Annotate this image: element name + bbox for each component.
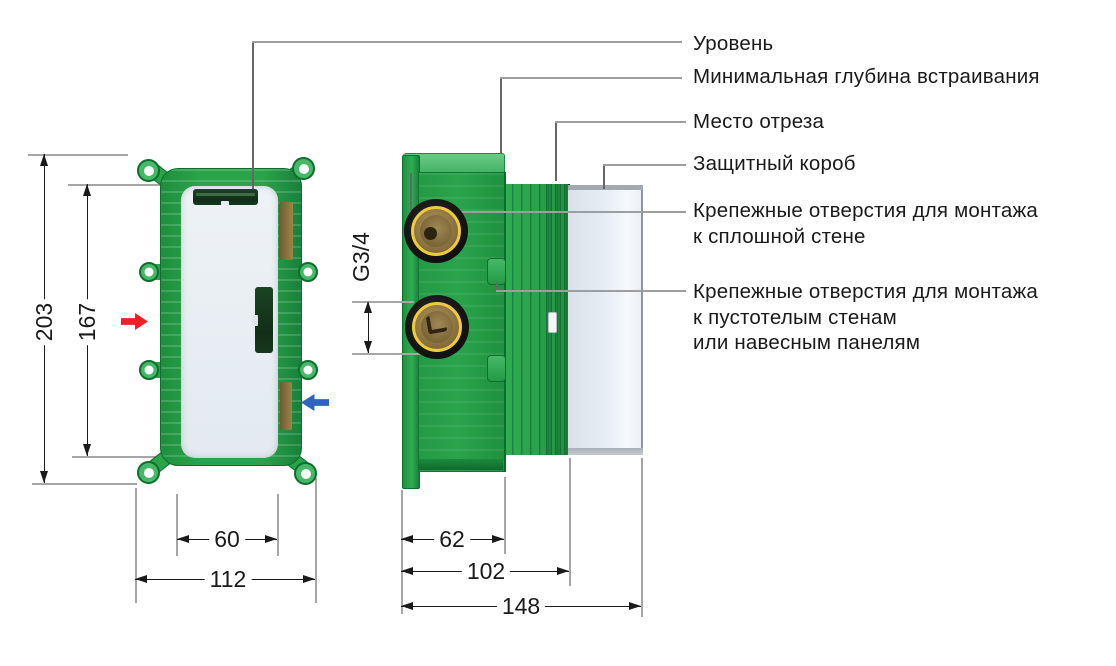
label-min-depth: Минимальная глубина встраивания xyxy=(693,64,1040,90)
label-hollow-wall-line3: или навесным панелям xyxy=(693,330,1038,356)
dim-167-arrow-bottom xyxy=(83,444,91,456)
hollow-wall-tab xyxy=(487,355,506,382)
leader-cut-place xyxy=(555,121,686,123)
ext-112-left xyxy=(135,488,137,603)
dim-102-value: 102 xyxy=(462,559,510,583)
ext-203-bottom xyxy=(32,483,137,485)
dim-62-arrow-right xyxy=(492,535,504,543)
leader-hollow-wall xyxy=(496,290,686,292)
port-top-g34 xyxy=(404,199,468,263)
dim-60-value: 60 xyxy=(209,527,245,551)
dim-203-arrow-top xyxy=(40,154,48,166)
side-slot xyxy=(255,287,273,353)
dim-112-value: 112 xyxy=(205,567,252,591)
protective-box-bottom-edge xyxy=(568,448,643,455)
label-protective-box: Защитный короб xyxy=(693,151,856,177)
dim-148-value: 148 xyxy=(497,594,545,618)
dim-g34-value: G3/4 xyxy=(349,228,373,286)
protective-box xyxy=(568,185,643,455)
mounting-lug-bottom-left xyxy=(137,461,160,484)
cut-zone-clip xyxy=(548,312,557,333)
dim-102-arrow-left xyxy=(401,567,413,575)
ext-148-left xyxy=(401,490,403,614)
dim-203-arrow-bottom xyxy=(40,471,48,483)
mounting-lug-bottom-right xyxy=(294,462,317,485)
leader-protective-box xyxy=(603,164,686,166)
ext-167-bottom xyxy=(72,456,162,458)
ext-60-right xyxy=(277,494,279,556)
leader-min-depth xyxy=(500,77,682,79)
dim-203-value: 203 xyxy=(32,299,56,345)
label-solid-wall: Крепежные отверстия для монтажа к сплошн… xyxy=(693,198,1038,249)
dim-167-arrow-top xyxy=(83,184,91,196)
dim-167-value: 167 xyxy=(75,299,99,345)
dim-g34-arrow-top xyxy=(364,301,372,313)
dim-g34-arrow-bottom xyxy=(364,341,372,353)
body-bottom-face xyxy=(419,459,503,470)
dim-148-arrow-right xyxy=(629,602,641,610)
dim-112-arrow-left xyxy=(135,575,147,583)
label-hollow-wall: Крепежные отверстия для монтажа к пустот… xyxy=(693,279,1038,356)
port-bottom-g34 xyxy=(405,295,469,359)
shower-valve-installation-diagram: Уровень Минимальная глубина встраивания … xyxy=(0,0,1116,666)
brass-edge xyxy=(279,202,293,260)
label-level: Уровень xyxy=(693,31,773,57)
dim-148-arrow-left xyxy=(401,602,413,610)
mounting-lug-top-right xyxy=(292,157,315,180)
ext-62-right xyxy=(504,477,506,554)
dim-62-arrow-left xyxy=(401,535,413,543)
dim-62-value: 62 xyxy=(434,527,470,551)
mounting-lug-top-left xyxy=(137,159,160,182)
leader-level xyxy=(252,41,682,43)
dim-60-arrow-right xyxy=(265,535,277,543)
side-tab-hole xyxy=(298,262,318,282)
label-cut-place: Место отреза xyxy=(693,109,824,135)
hot-water-arrow xyxy=(121,313,148,330)
ext-g34-bottom xyxy=(352,353,420,355)
brass-edge xyxy=(280,382,292,430)
leader-min-depth xyxy=(500,77,502,153)
leader-level xyxy=(252,41,254,189)
label-hollow-wall-line2: к пустотелым стенам xyxy=(693,305,1038,331)
label-hollow-wall-line1: Крепежные отверстия для монтажа xyxy=(693,279,1038,305)
dim-112-arrow-right xyxy=(303,575,315,583)
ext-102-right xyxy=(569,458,571,586)
ext-g34-top xyxy=(352,301,414,303)
leader-solid-wall xyxy=(410,173,412,212)
leader-cut-place xyxy=(555,121,557,181)
ext-112-right xyxy=(315,478,317,603)
level-slot xyxy=(193,189,258,205)
protective-box-top-edge xyxy=(568,185,643,190)
side-tab-hole xyxy=(298,360,318,380)
ext-60-left xyxy=(176,494,178,556)
dim-102-arrow-right xyxy=(557,567,569,575)
label-solid-wall-line2: к сплошной стене xyxy=(693,224,1038,250)
ext-148-right xyxy=(641,458,643,617)
hollow-wall-tab xyxy=(487,258,506,285)
dim-60-arrow-left xyxy=(177,535,189,543)
cold-water-arrow xyxy=(301,394,329,411)
side-tab-hole xyxy=(139,262,159,282)
leader-protective-box xyxy=(603,164,605,189)
side-tab-hole xyxy=(139,360,159,380)
label-solid-wall-line1: Крепежные отверстия для монтажа xyxy=(693,198,1038,224)
